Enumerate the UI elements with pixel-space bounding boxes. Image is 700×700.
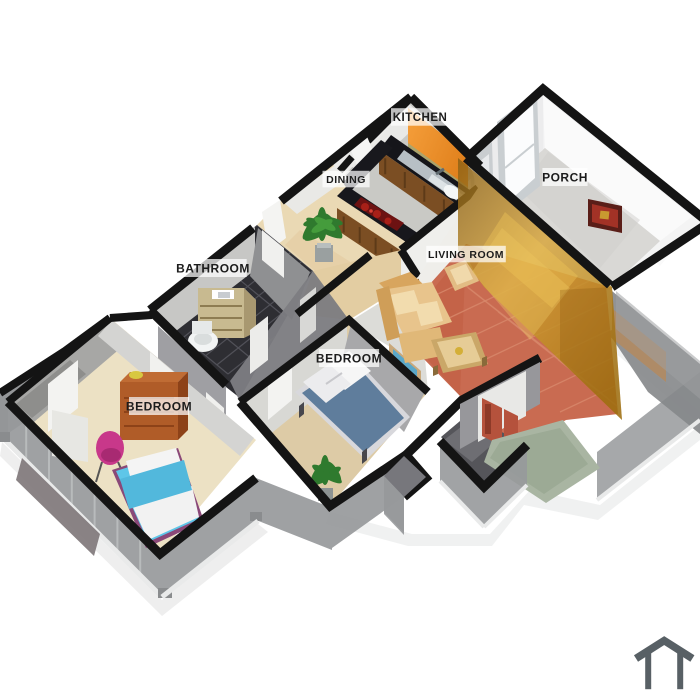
svg-text:PORCH: PORCH <box>542 170 588 184</box>
svg-text:BATHROOM: BATHROOM <box>176 261 250 275</box>
svg-text:DINING: DINING <box>326 174 366 186</box>
svg-text:BEDROOM: BEDROOM <box>126 399 192 413</box>
svg-text:LIVING ROOM: LIVING ROOM <box>428 249 504 261</box>
svg-text:BEDROOM: BEDROOM <box>316 351 382 365</box>
svg-text:KITCHEN: KITCHEN <box>393 112 448 124</box>
